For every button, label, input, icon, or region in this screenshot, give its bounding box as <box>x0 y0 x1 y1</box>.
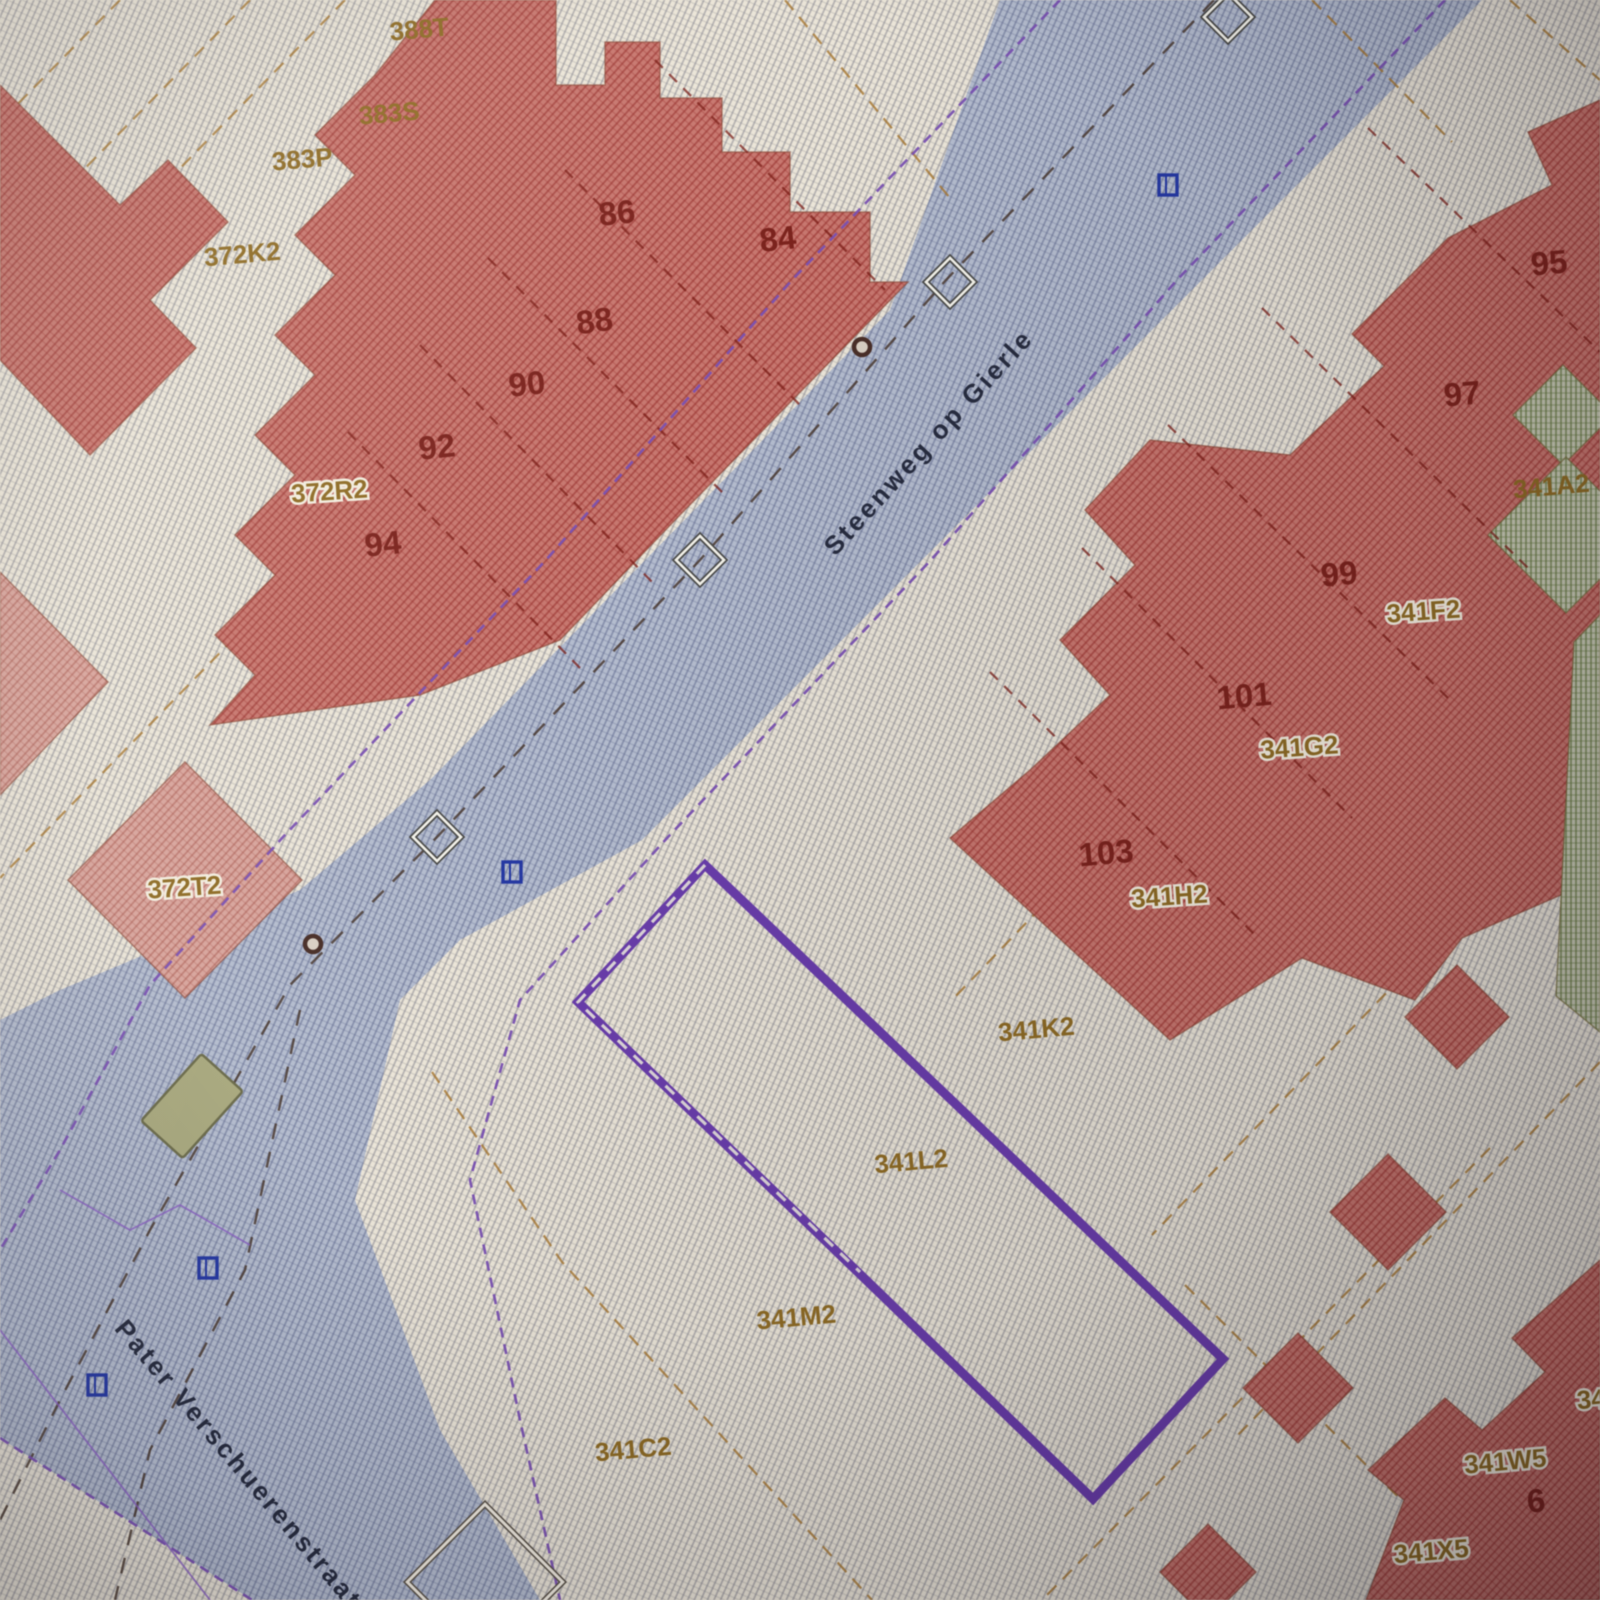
house-number-90: 90 <box>507 363 547 404</box>
house-number-6: 6 <box>1525 1481 1547 1519</box>
cadastral-map-viewport: 388T 383S 383P 372K2 372R2 372T2 341A2 3… <box>0 0 1600 1600</box>
house-number-101: 101 <box>1215 675 1273 717</box>
house-number-99: 99 <box>1319 554 1359 594</box>
house-number-103: 103 <box>1077 832 1135 874</box>
house-number-94: 94 <box>363 523 404 564</box>
house-number-86: 86 <box>597 192 637 233</box>
parcel-label-341F2: 341F2 <box>1386 593 1462 628</box>
parcel-label-388T: 388T <box>388 11 450 46</box>
parcel-label-383S: 383S <box>358 95 421 130</box>
parcel-label-341G2: 341G2 <box>1259 729 1339 764</box>
point-marker-icon <box>305 936 321 952</box>
parcel-label-341L2: 341L2 <box>873 1143 949 1179</box>
parcel-label-383P: 383P <box>271 141 334 176</box>
house-number-88: 88 <box>574 300 616 342</box>
parcel-label-372R2: 372R2 <box>290 473 369 508</box>
house-number-92: 92 <box>417 426 457 467</box>
parcel-label-34-partial: 34 <box>1576 1383 1600 1415</box>
house-number-97: 97 <box>1442 374 1482 414</box>
cadastral-map: 388T 383S 383P 372K2 372R2 372T2 341A2 3… <box>0 0 1600 1600</box>
house-number-95: 95 <box>1529 243 1569 283</box>
point-marker-icon <box>854 339 870 355</box>
parcel-label-341H2: 341H2 <box>1130 878 1209 913</box>
parcel-label-372T2: 372T2 <box>147 869 223 904</box>
house-number-84: 84 <box>758 218 799 259</box>
